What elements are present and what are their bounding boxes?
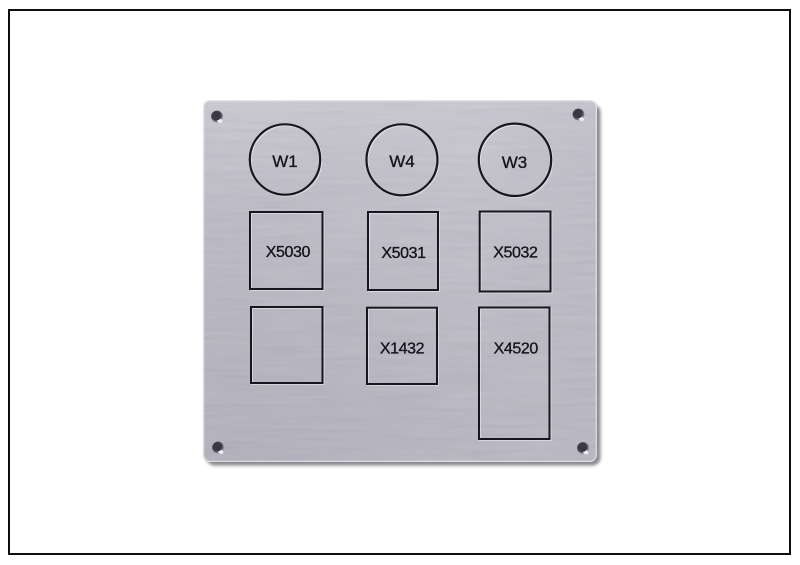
svg-text:X5030: X5030 bbox=[266, 244, 311, 261]
svg-text:W3: W3 bbox=[502, 153, 528, 172]
svg-text:X5031: X5031 bbox=[381, 245, 426, 262]
svg-text:W4: W4 bbox=[389, 152, 415, 171]
svg-text:X5032: X5032 bbox=[493, 244, 538, 261]
svg-text:W1: W1 bbox=[272, 152, 298, 171]
svg-text:X4520: X4520 bbox=[494, 340, 539, 357]
svg-text:X1432: X1432 bbox=[380, 340, 425, 357]
